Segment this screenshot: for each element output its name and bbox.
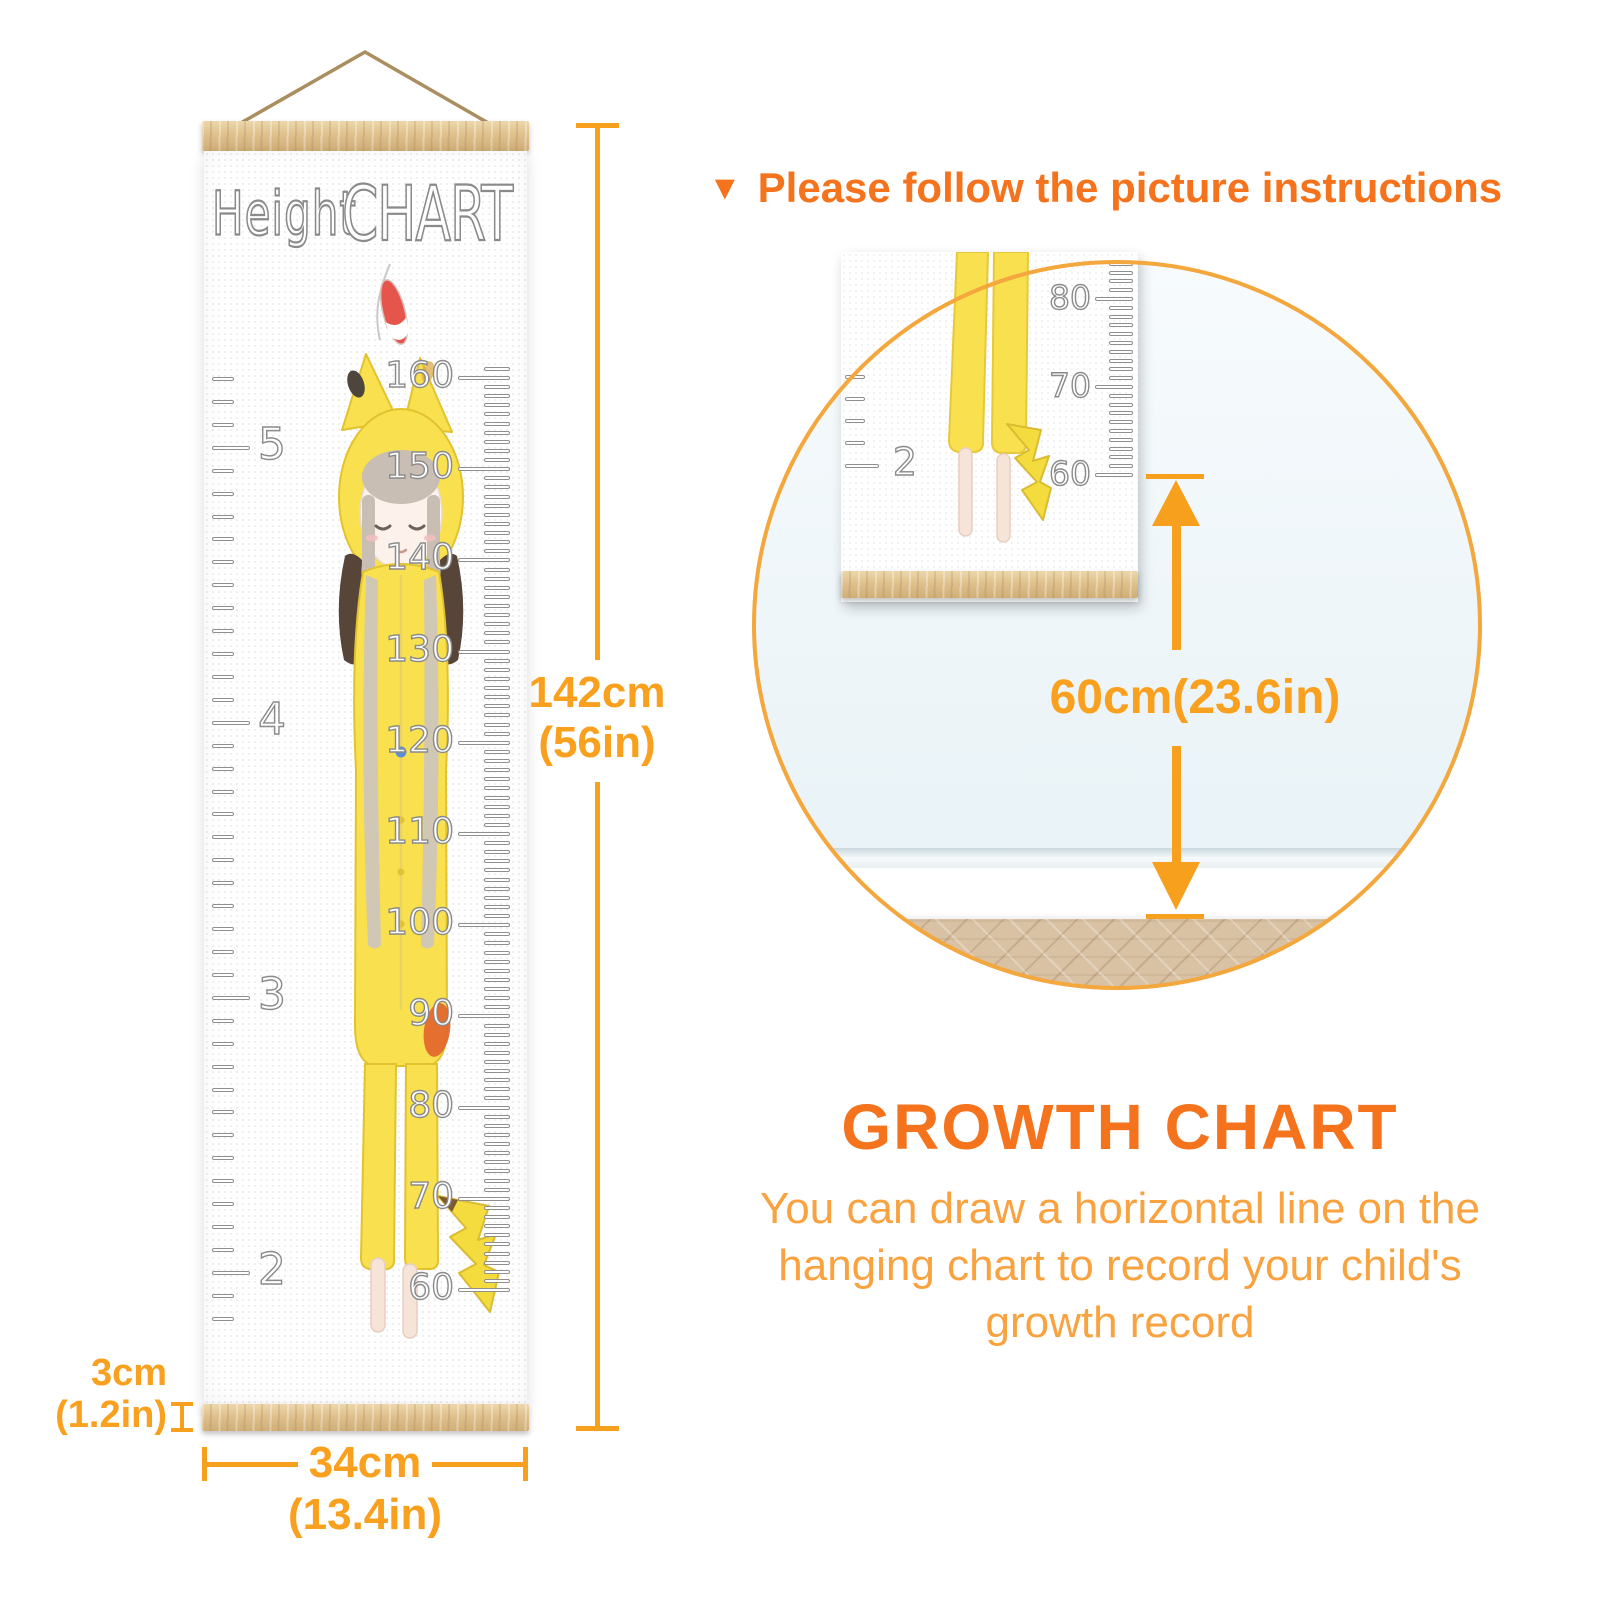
inset-feet-minor-tick (845, 441, 865, 445)
cm-minor-tick (484, 1042, 510, 1046)
inset-cm-minor-tick (1109, 438, 1133, 442)
cm-minor-tick (484, 969, 510, 973)
feet-minor-tick (212, 881, 234, 885)
feet-label: 4 (250, 696, 294, 744)
feet-minor-tick (212, 744, 234, 748)
cm-minor-tick (484, 1160, 510, 1164)
feet-minor-tick (212, 560, 234, 564)
cm-minor-tick (484, 622, 510, 626)
feet-minor-tick (212, 423, 234, 427)
cm-minor-tick (484, 449, 510, 453)
cm-minor-tick (484, 805, 510, 809)
baseboard (752, 868, 1482, 919)
cm-minor-tick (484, 394, 510, 398)
feet-label: 2 (250, 1246, 294, 1294)
feet-label: 5 (250, 421, 294, 469)
cm-major-tick (458, 467, 510, 471)
cm-major-tick (458, 923, 510, 927)
inset-cm-minor-tick (1109, 376, 1133, 380)
inset-cm-minor-tick (1109, 323, 1133, 327)
inset-cm-minor-tick (1109, 288, 1133, 292)
feet-minor-tick (212, 1133, 234, 1137)
cm-label: 90 (336, 994, 454, 1034)
height-dim-line-upper (595, 123, 600, 660)
cm-label: 60 (336, 1268, 454, 1308)
inset-cm-minor-tick (1109, 350, 1133, 354)
cm-minor-tick (484, 1179, 510, 1183)
cm-minor-tick (484, 1206, 510, 1210)
inset-feet-minor-tick (845, 375, 865, 379)
cm-minor-tick (484, 732, 510, 736)
cm-label: 100 (336, 903, 454, 943)
cm-minor-tick (484, 1252, 510, 1256)
inset-cm-minor-tick (1109, 367, 1133, 371)
measure-shaft-upper (1172, 524, 1181, 650)
inset-cm-major-tick (1095, 297, 1133, 301)
feet-label: 3 (250, 971, 294, 1019)
inset-feet-major-tick (845, 464, 879, 468)
cm-major-tick (458, 376, 510, 380)
cm-minor-tick (484, 476, 510, 480)
cm-minor-tick (484, 1224, 510, 1228)
feet-minor-tick (212, 606, 234, 610)
cm-minor-tick (484, 659, 510, 663)
cm-minor-tick (484, 1188, 510, 1192)
bar-dim-cap-bottom (171, 1428, 193, 1432)
cm-minor-tick (484, 704, 510, 708)
cm-label: 140 (336, 538, 454, 578)
feet-minor-tick (212, 950, 234, 954)
cm-minor-tick (484, 1151, 510, 1155)
inset-cm-minor-tick (1109, 359, 1133, 363)
feet-minor-tick (212, 973, 234, 977)
cm-minor-tick (484, 1033, 510, 1037)
inset-cm-minor-tick (1109, 394, 1133, 398)
feet-major-tick (212, 721, 250, 725)
inset-cm-major-tick (1095, 385, 1133, 389)
feet-minor-tick (212, 1179, 234, 1183)
cm-minor-tick (484, 996, 510, 1000)
width-dim-sub: (13.4in) (270, 1490, 460, 1540)
cm-minor-tick (484, 960, 510, 964)
cm-minor-tick (484, 914, 510, 918)
cm-minor-tick (484, 1279, 510, 1283)
feet-minor-tick (212, 537, 234, 541)
bottom-wood-bar (202, 1404, 529, 1431)
inset-cm-minor-tick (1109, 271, 1133, 275)
cm-minor-tick (484, 896, 510, 900)
instruction-heading: ▼Please follow the picture instructions (708, 164, 1502, 212)
cm-minor-tick (484, 640, 510, 644)
cm-minor-tick (484, 367, 510, 371)
inset-cm-minor-tick (1109, 411, 1133, 415)
cm-minor-tick (484, 1124, 510, 1128)
width-dim-line-right (432, 1462, 526, 1467)
product-infographic: Height CHART (0, 0, 1600, 1600)
cm-minor-tick (484, 1215, 510, 1219)
feet-minor-tick (212, 767, 234, 771)
inset-cm-minor-tick (1109, 332, 1133, 336)
measure-line-floor (1146, 914, 1204, 919)
measure-label: 60cm(23.6in) (1015, 670, 1375, 725)
cm-minor-tick (484, 1133, 510, 1137)
cm-minor-tick (484, 786, 510, 790)
feet-major-tick (212, 1271, 250, 1275)
cm-minor-tick (484, 723, 510, 727)
feet-minor-tick (212, 1088, 234, 1092)
cm-minor-tick (484, 987, 510, 991)
feet-minor-tick (212, 652, 234, 656)
inset-cm-minor-tick (1109, 262, 1133, 266)
cm-minor-tick (484, 768, 510, 772)
cm-major-tick (458, 832, 510, 836)
cm-major-tick (458, 1288, 510, 1292)
cm-minor-tick (484, 777, 510, 781)
cm-major-tick (458, 1197, 510, 1201)
feet-major-tick (212, 996, 250, 1000)
cm-minor-tick (484, 841, 510, 845)
feet-minor-tick (212, 858, 234, 862)
cm-minor-tick (484, 540, 510, 544)
feet-minor-tick (212, 790, 234, 794)
inset-feet-label: 2 (883, 442, 927, 484)
cm-minor-tick (484, 868, 510, 872)
cm-major-tick (458, 1014, 510, 1018)
inset-cm-minor-tick (1109, 429, 1133, 433)
cm-label: 150 (336, 447, 454, 487)
cm-minor-tick (484, 814, 510, 818)
cm-label: 130 (336, 630, 454, 670)
cm-minor-tick (484, 1069, 510, 1073)
cm-minor-tick (484, 1051, 510, 1055)
cm-minor-tick (484, 531, 510, 535)
cm-minor-tick (484, 713, 510, 717)
cm-minor-tick (484, 595, 510, 599)
inset-cm-minor-tick (1109, 279, 1133, 283)
cm-minor-tick (484, 668, 510, 672)
cm-minor-tick (484, 978, 510, 982)
feet-minor-tick (212, 469, 234, 473)
cm-label: 80 (336, 1086, 454, 1126)
cm-minor-tick (484, 823, 510, 827)
feet-minor-tick (212, 1065, 234, 1069)
inset-cm-minor-tick (1109, 341, 1133, 345)
measure-shaft-lower (1172, 746, 1181, 864)
cm-label: 160 (336, 356, 454, 396)
feet-minor-tick (212, 927, 234, 931)
feet-minor-tick (212, 1317, 234, 1321)
cm-minor-tick (484, 1060, 510, 1064)
cm-minor-tick (484, 695, 510, 699)
cm-minor-tick (484, 422, 510, 426)
chart-bottom-inset: 2 807060 (841, 252, 1138, 602)
growth-line-1: You can draw a horizontal line on the (690, 1180, 1550, 1237)
cm-minor-tick (484, 513, 510, 517)
feet-minor-tick (212, 583, 234, 587)
inset-feet-minor-tick (845, 419, 865, 423)
down-triangle-icon: ▼ (708, 169, 758, 207)
cm-minor-tick (484, 604, 510, 608)
cm-minor-tick (484, 1261, 510, 1265)
cm-minor-tick (484, 1005, 510, 1009)
bar-dim-sub: (1.2in) (35, 1394, 167, 1437)
cm-minor-tick (484, 1087, 510, 1091)
cm-minor-tick (484, 1242, 510, 1246)
height-dim-value: 142cm (518, 668, 676, 718)
cm-minor-tick (484, 504, 510, 508)
bar-dim-line (180, 1404, 184, 1429)
cm-major-tick (458, 1106, 510, 1110)
feet-minor-tick (212, 1248, 234, 1252)
feet-minor-tick (212, 1110, 234, 1114)
cm-minor-tick (484, 859, 510, 863)
inset-cm-label: 60 (991, 456, 1091, 492)
inset-cm-minor-tick (1109, 306, 1133, 310)
inset-cm-minor-tick (1109, 420, 1133, 424)
feet-minor-tick (212, 629, 234, 633)
inset-cm-major-tick (1095, 473, 1133, 477)
cm-minor-tick (484, 1142, 510, 1146)
cm-minor-tick (484, 1024, 510, 1028)
cm-minor-tick (484, 412, 510, 416)
cm-minor-tick (484, 458, 510, 462)
cm-minor-tick (484, 878, 510, 882)
cm-label: 70 (336, 1177, 454, 1217)
feet-minor-tick (212, 515, 234, 519)
cm-minor-tick (484, 568, 510, 572)
cm-minor-tick (484, 1169, 510, 1173)
feet-minor-tick (212, 1202, 234, 1206)
feet-minor-tick (212, 1294, 234, 1298)
cm-label: 110 (336, 812, 454, 852)
instruction-heading-text: Please follow the picture instructions (758, 164, 1502, 211)
cm-label: 120 (336, 721, 454, 761)
cm-minor-tick (484, 887, 510, 891)
cm-minor-tick (484, 750, 510, 754)
cm-minor-tick (484, 403, 510, 407)
cm-minor-tick (484, 1270, 510, 1274)
cm-minor-tick (484, 1096, 510, 1100)
cm-minor-tick (484, 1115, 510, 1119)
feet-minor-tick (212, 1225, 234, 1229)
cm-minor-tick (484, 759, 510, 763)
cm-minor-tick (484, 1233, 510, 1237)
cm-minor-tick (484, 485, 510, 489)
feet-minor-tick (212, 698, 234, 702)
cm-minor-tick (484, 686, 510, 690)
height-dim-line-lower (595, 782, 600, 1430)
height-dim-sub: (56in) (518, 718, 676, 768)
width-dim-value: 34cm (290, 1438, 440, 1488)
cm-minor-tick (484, 440, 510, 444)
cm-minor-tick (484, 385, 510, 389)
inset-cm-minor-tick (1109, 447, 1133, 451)
cm-minor-tick (484, 613, 510, 617)
cm-minor-tick (484, 951, 510, 955)
cm-minor-tick (484, 850, 510, 854)
cm-minor-tick (484, 631, 510, 635)
inset-wood-bar (841, 571, 1138, 598)
cm-minor-tick (484, 522, 510, 526)
cm-minor-tick (484, 431, 510, 435)
inset-cm-label: 80 (991, 280, 1091, 316)
growth-heading: GROWTH CHART (720, 1090, 1520, 1164)
feet-minor-tick (212, 904, 234, 908)
cm-minor-tick (484, 932, 510, 936)
arrow-up-icon (1152, 480, 1200, 526)
measure-line-top (1146, 474, 1204, 479)
parquet-floor (752, 919, 1482, 990)
width-dim-line-left (204, 1462, 298, 1467)
feet-minor-tick (212, 1156, 234, 1160)
arrow-down-icon (1152, 862, 1200, 910)
cm-minor-tick (484, 586, 510, 590)
feet-minor-tick (212, 492, 234, 496)
cm-minor-tick (484, 677, 510, 681)
feet-minor-tick (212, 400, 234, 404)
feet-minor-tick (212, 675, 234, 679)
cm-minor-tick (484, 941, 510, 945)
cm-minor-tick (484, 495, 510, 499)
cm-minor-tick (484, 796, 510, 800)
inset-cm-minor-tick (1109, 464, 1133, 468)
width-dim-tick-right (523, 1447, 528, 1481)
feet-minor-tick (212, 1042, 234, 1046)
cm-major-tick (458, 650, 510, 654)
growth-line-3: growth record (690, 1294, 1550, 1351)
cm-minor-tick (484, 1078, 510, 1082)
top-wood-bar (202, 121, 529, 151)
inset-feet-minor-tick (845, 397, 865, 401)
cm-minor-tick (484, 549, 510, 553)
height-dim-cap-bottom (576, 1426, 619, 1431)
feet-major-tick (212, 446, 250, 450)
pokeball-icon (375, 277, 412, 346)
cm-minor-tick (484, 905, 510, 909)
inset-cm-minor-tick (1109, 455, 1133, 459)
cm-major-tick (458, 741, 510, 745)
baseboard-molding-light (752, 857, 1482, 868)
feet-minor-tick (212, 377, 234, 381)
bar-dim-value: 3cm (35, 1352, 167, 1395)
inset-cm-minor-tick (1109, 315, 1133, 319)
feet-minor-tick (212, 1019, 234, 1023)
growth-line-2: hanging chart to record your child's (690, 1237, 1550, 1294)
feet-minor-tick (212, 812, 234, 816)
baseboard-molding (752, 848, 1482, 857)
cm-major-tick (458, 558, 510, 562)
cm-minor-tick (484, 577, 510, 581)
inset-cm-label: 70 (991, 368, 1091, 404)
feet-minor-tick (212, 835, 234, 839)
inset-cm-minor-tick (1109, 403, 1133, 407)
